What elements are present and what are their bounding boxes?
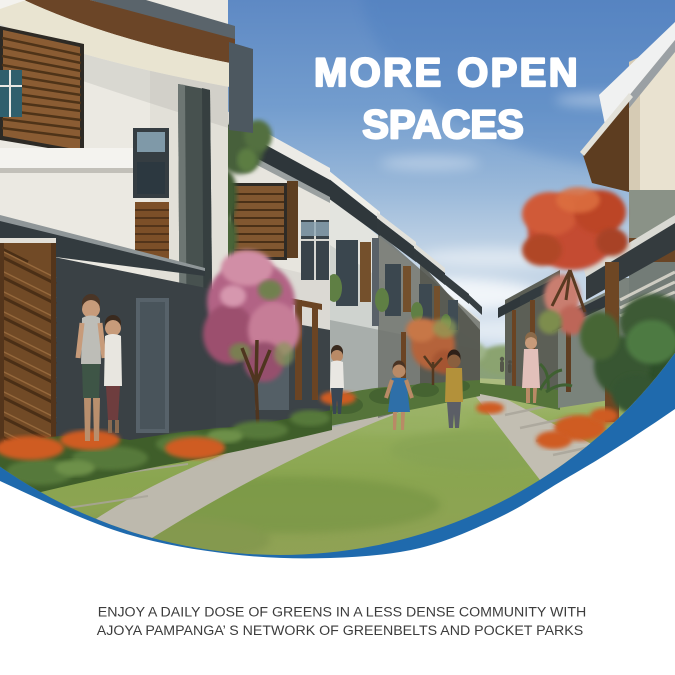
svg-text:MORE OPEN: MORE OPEN (314, 51, 580, 95)
svg-text:ENJOY A DAILY DOSE OF GREENS I: ENJOY A DAILY DOSE OF GREENS IN A LESS D… (98, 605, 587, 621)
svg-text:AJOYA PAMPANGA’ S NETWORK OF G: AJOYA PAMPANGA’ S NETWORK OF GREENBELTS … (97, 623, 583, 639)
svg-text:SPACES: SPACES (362, 103, 524, 147)
